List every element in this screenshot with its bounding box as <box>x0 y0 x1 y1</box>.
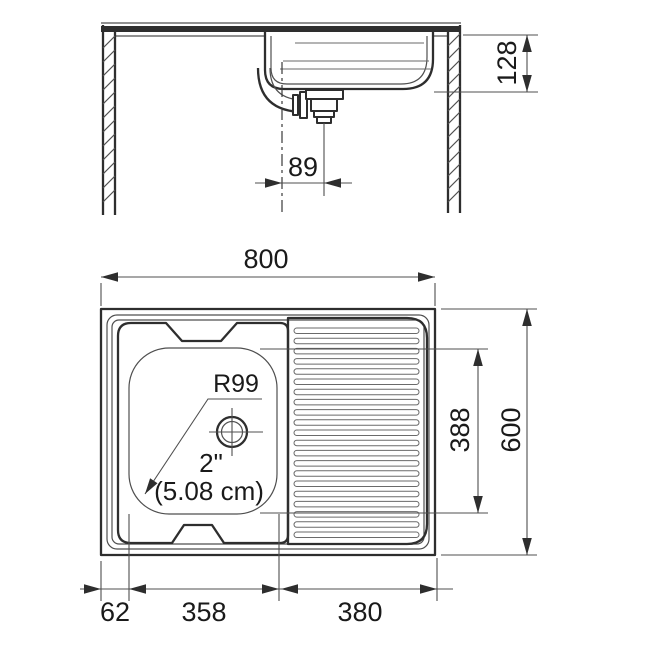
radius-label: R99 <box>213 370 259 398</box>
arrowhead-down <box>473 496 483 513</box>
drainboard <box>288 318 427 544</box>
drain-trap <box>258 68 343 123</box>
drainboard-rib <box>294 532 419 538</box>
hatch-tick <box>103 176 115 188</box>
arrowhead-380-left <box>281 584 298 594</box>
left-cabinet-wall <box>103 25 115 215</box>
dim-label-388: 388 <box>445 407 475 452</box>
hatch-tick <box>448 112 460 124</box>
drain-tailpiece <box>317 117 331 123</box>
arrowhead-358-left <box>129 584 146 594</box>
hatch-tick <box>448 73 460 85</box>
drainboard-rib <box>294 512 419 517</box>
hatch-tick <box>103 120 115 132</box>
hatch-tick <box>448 177 460 189</box>
hatch-tick <box>448 47 460 59</box>
countertop <box>101 23 461 36</box>
trap-nut-1 <box>293 95 298 115</box>
arrowhead-left <box>101 272 118 282</box>
dim-label-800: 800 <box>243 244 288 274</box>
hatch-tick <box>103 148 115 160</box>
drainboard-rib <box>294 359 419 365</box>
hatch-tick <box>103 92 115 104</box>
arrowhead-up <box>522 35 532 52</box>
hatch-tick <box>448 190 460 202</box>
drainboard-rib <box>294 501 419 507</box>
drain-size-label-in: 2" <box>199 448 223 478</box>
hatch-tick <box>448 138 460 150</box>
dim-label-128: 128 <box>492 40 522 85</box>
drainboard-rib <box>294 440 419 446</box>
drainboard-rib <box>294 430 419 436</box>
hatch-tick <box>448 151 460 163</box>
arrowhead-right <box>265 178 282 188</box>
drainboard-rib <box>294 338 419 344</box>
arrowhead-358-right <box>262 584 279 594</box>
sink-drawing-svg: 128 89 R99 <box>0 0 650 650</box>
drain-flange <box>306 90 343 99</box>
hatch-tick <box>448 34 460 46</box>
dim-label-89: 89 <box>288 152 318 182</box>
section-view: 128 89 <box>101 23 538 215</box>
drain-body <box>311 99 337 111</box>
drainboard-rib <box>294 491 419 497</box>
hatch-tick <box>103 162 115 174</box>
dim-label-358: 358 <box>181 597 226 627</box>
hatch-tick <box>448 99 460 111</box>
drain-size-label-cm: (5.08 cm) <box>154 476 264 506</box>
drainboard-rib <box>294 481 419 487</box>
drainboard-rib <box>294 369 419 375</box>
drainboard-rib <box>294 379 419 385</box>
hatch-tick <box>103 134 115 146</box>
drainboard-rib <box>294 399 419 405</box>
bowl-outer-wall <box>265 31 433 89</box>
hatch-tick <box>448 60 460 72</box>
hatch-tick <box>103 50 115 62</box>
arrowhead-380-right <box>420 584 437 594</box>
dim-drain-offset: 89 <box>255 152 352 188</box>
sink-bowl-section <box>265 31 433 89</box>
drainboard-rib <box>294 420 419 426</box>
drainboard-rib <box>294 461 419 467</box>
dim-label-380: 380 <box>337 597 382 627</box>
arrowhead-up <box>522 309 532 326</box>
hatch-tick <box>103 36 115 48</box>
drainboard-rib <box>294 450 419 456</box>
drainboard-rib <box>294 522 419 528</box>
hatch-tick <box>103 190 115 202</box>
drainboard-rib <box>294 328 419 334</box>
arrowhead-down <box>522 75 532 92</box>
arrowhead-62-outside <box>84 584 101 594</box>
right-cabinet-wall <box>448 25 460 213</box>
hatch-tick <box>103 64 115 76</box>
plan-view: R99 2" (5.08 cm) 800 600 <box>80 244 537 627</box>
drainboard-rib <box>294 471 419 477</box>
technical-drawing-canvas: 128 89 R99 <box>0 0 650 650</box>
hatch-tick <box>103 106 115 118</box>
drainboard-ribs <box>294 328 419 538</box>
drainboard-outline <box>288 318 427 544</box>
drainboard-rib <box>294 410 419 416</box>
dim-chain-bottom: 62 358 380 <box>80 514 453 627</box>
bowl-area-contour <box>118 323 288 543</box>
dim-label-62: 62 <box>100 597 130 627</box>
sink-outer-edge <box>101 309 435 555</box>
left-wall-hatch <box>103 36 115 202</box>
dim-label-600: 600 <box>496 407 526 452</box>
arrowhead-left <box>324 178 341 188</box>
hatch-tick <box>103 78 115 90</box>
arrowhead-up <box>473 349 483 366</box>
hatch-tick <box>448 164 460 176</box>
arrowhead-down <box>522 538 532 555</box>
dim-overall-width: 800 <box>101 244 435 306</box>
right-wall-hatch <box>448 34 460 202</box>
drainboard-rib <box>294 389 419 395</box>
hatch-tick <box>448 125 460 137</box>
arrowhead-right <box>418 272 435 282</box>
